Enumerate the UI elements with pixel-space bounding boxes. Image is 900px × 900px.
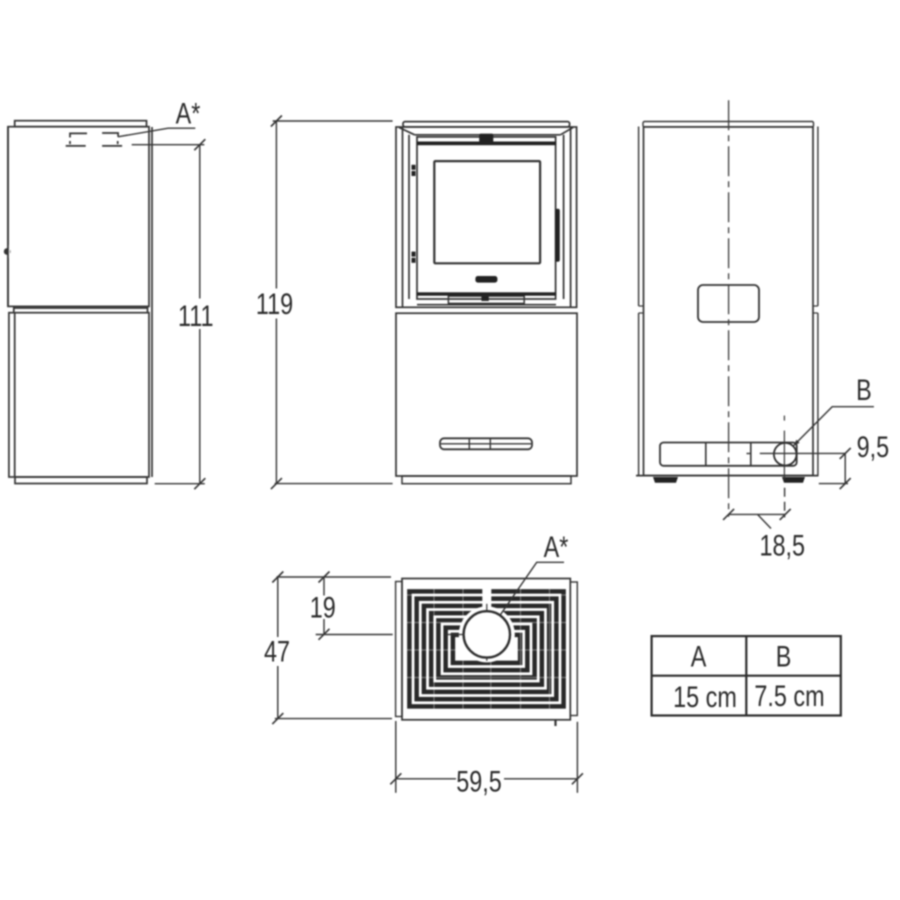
svg-text:47: 47 bbox=[264, 635, 290, 668]
svg-text:15 cm: 15 cm bbox=[673, 680, 737, 713]
svg-text:18,5: 18,5 bbox=[760, 529, 806, 562]
svg-text:B: B bbox=[776, 640, 792, 673]
svg-text:59,5: 59,5 bbox=[456, 765, 502, 798]
svg-text:A*: A* bbox=[544, 530, 569, 563]
svg-text:A*: A* bbox=[176, 97, 201, 130]
svg-text:111: 111 bbox=[178, 299, 214, 332]
svg-text:119: 119 bbox=[256, 287, 293, 320]
svg-text:9,5: 9,5 bbox=[857, 430, 890, 463]
svg-text:B: B bbox=[856, 373, 872, 406]
svg-text:19: 19 bbox=[310, 591, 336, 624]
svg-text:7.5 cm: 7.5 cm bbox=[754, 679, 824, 712]
svg-text:A: A bbox=[691, 640, 707, 673]
